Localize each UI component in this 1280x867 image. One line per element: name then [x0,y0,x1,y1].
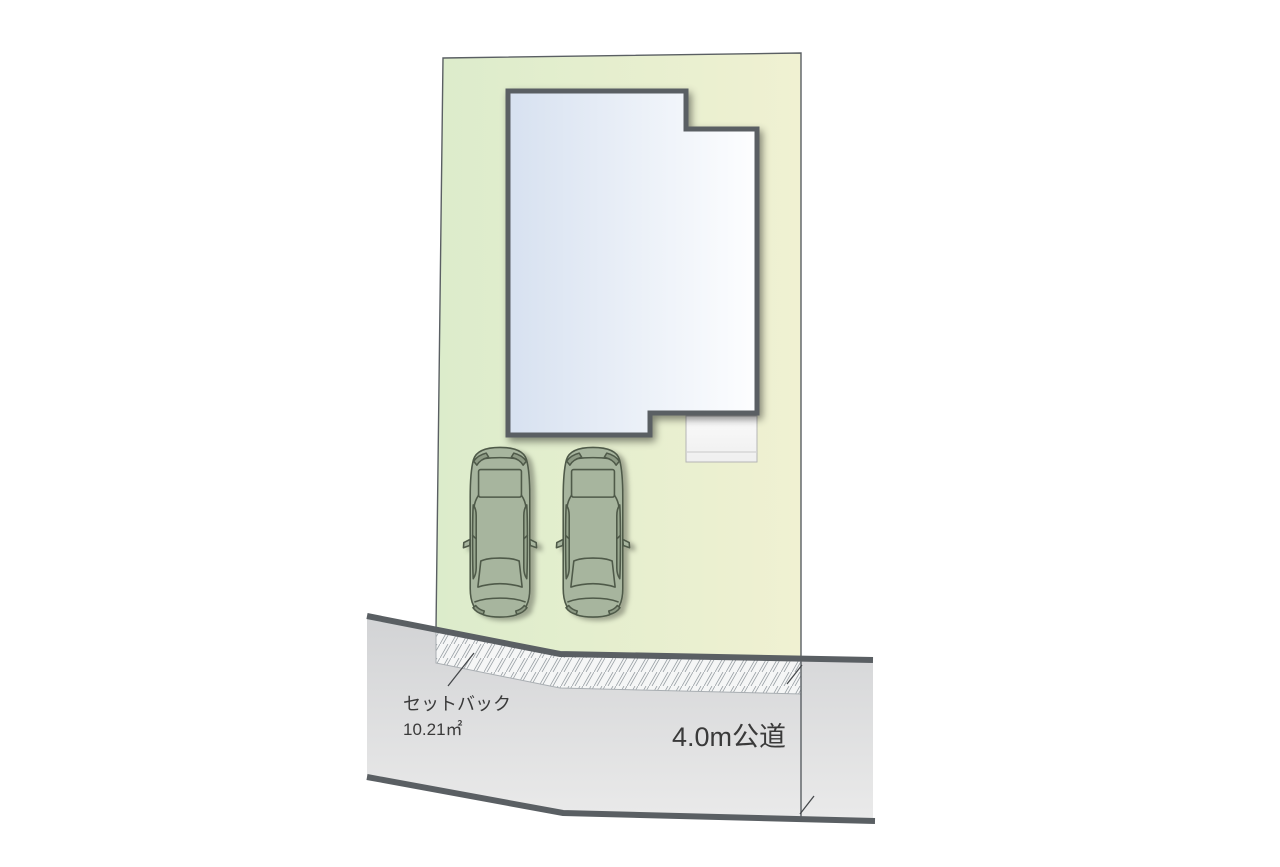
car-top-view-1 [463,447,536,617]
setback-label: セットバック [403,694,511,714]
road-width-label: 4.0m公道 [672,722,786,752]
setback-area-label: 10.21㎡ [403,720,463,739]
site-plan-page: セットバック 10.21㎡ 4.0m公道 [0,0,1280,867]
building-footprint [508,91,757,435]
entrance-porch [686,416,757,462]
car-top-view-2 [556,447,629,617]
site-plan-canvas: セットバック 10.21㎡ 4.0m公道 [0,0,1280,867]
